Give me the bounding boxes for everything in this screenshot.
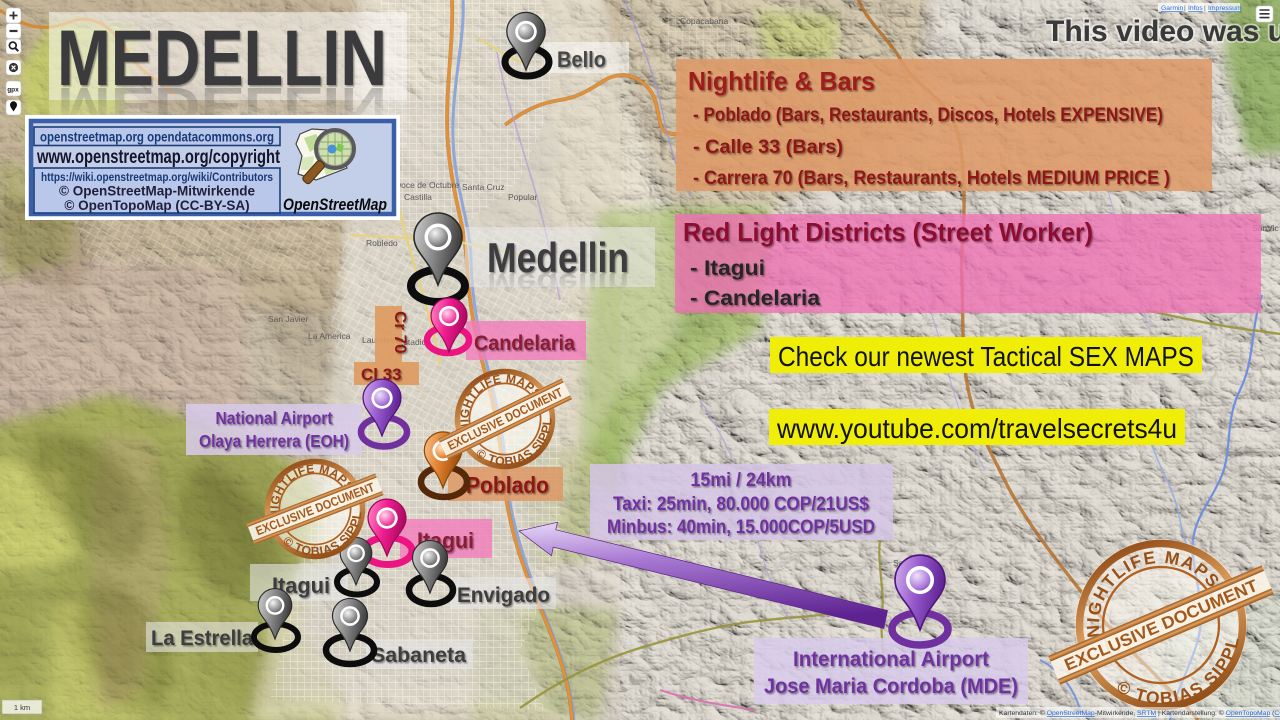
svg-text:Copacabana: Copacabana	[680, 16, 728, 26]
svg-text:Kartendaten: © OpenStreetMap-M: Kartendaten: © OpenStreetMap-Mitwirkende…	[999, 709, 1280, 717]
svg-text:This video was uplo: This video was uplo	[1046, 15, 1280, 48]
svg-text:www.youtube.com/travelsecrets4: www.youtube.com/travelsecrets4u	[776, 413, 1177, 444]
svg-text:- Carrera 70 (Bars, Restaurant: - Carrera 70 (Bars, Restaurants, Hotels …	[693, 168, 1170, 189]
svg-text:Red Light Districts (Street Wo: Red Light Districts (Street Worker)	[683, 217, 1093, 247]
svg-text:OpenStreetMap: OpenStreetMap	[283, 196, 387, 214]
svg-text:openstreetmap.org opendatacom: openstreetmap.org opendatacommons.org	[40, 129, 274, 145]
svg-text:|: |	[1184, 5, 1186, 12]
svg-text:National Airport: National Airport	[216, 408, 333, 428]
svg-text:Bello: Bello	[557, 47, 606, 72]
svg-text:Medellin: Medellin	[487, 268, 629, 299]
svg-text:San Javier: San Javier	[268, 314, 308, 324]
svg-text:Taxi: 25min, 80.000 COP/21US$: Taxi: 25min, 80.000 COP/21US$	[613, 494, 869, 515]
svg-text:- Calle 33 (Bars): - Calle 33 (Bars)	[693, 137, 843, 158]
svg-text:Doce de Octubre: Doce de Octubre	[395, 180, 460, 190]
svg-text:Robledo: Robledo	[366, 238, 398, 248]
svg-text:gpx: gpx	[7, 87, 19, 94]
svg-text:Cr 70: Cr 70	[391, 311, 410, 354]
svg-text:Infos: Infos	[1188, 5, 1203, 12]
svg-text:La America: La America	[308, 331, 351, 341]
svg-text:Envigado: Envigado	[457, 584, 550, 607]
svg-text:Castilla: Castilla	[404, 192, 432, 202]
svg-text:Minbus: 40min, 15.000COP/5USD: Minbus: 40min, 15.000COP/5USD	[607, 517, 875, 538]
svg-text:Olaya Herrera (EOH): Olaya Herrera (EOH)	[199, 431, 349, 451]
svg-text:Poblado: Poblado	[466, 472, 549, 498]
svg-text:- Candelaria: - Candelaria	[690, 287, 820, 310]
svg-text:International Airport: International Airport	[793, 648, 989, 671]
svg-text:Sabaneta: Sabaneta	[371, 644, 466, 667]
svg-text:15mi / 24km: 15mi / 24km	[691, 470, 792, 491]
svg-text:Candelaria: Candelaria	[474, 332, 575, 355]
svg-text:Nightlife & Bars: Nightlife & Bars	[688, 66, 875, 96]
svg-text:|: |	[1204, 5, 1206, 12]
svg-text:- Itagui: - Itagui	[690, 257, 765, 280]
svg-text:Check our newest Tactical SEX: Check our newest Tactical SEX MAPS	[778, 341, 1194, 372]
svg-text:La Estrella: La Estrella	[151, 627, 253, 650]
svg-text:© OpenTopoMap (CC-BY-SA): © OpenTopoMap (CC-BY-SA)	[64, 198, 249, 213]
svg-text:- Poblado (Bars, Restaurants,: - Poblado (Bars, Restaurants, Discos, Ho…	[693, 105, 1163, 126]
svg-text:Garmin: Garmin	[1161, 5, 1184, 12]
svg-text:© OpenStreetMap-Mitwirkende: © OpenStreetMap-Mitwirkende	[59, 184, 255, 199]
svg-text:Impressum: Impressum	[1208, 5, 1242, 12]
svg-text:https://wiki.openstreetmap.org: https://wiki.openstreetmap.org/wiki/Cont…	[41, 172, 273, 184]
svg-text:www.openstreetmap.org/copyrigh: www.openstreetmap.org/copyright	[36, 146, 280, 168]
svg-text:Jose Maria Cordoba (MDE): Jose Maria Cordoba (MDE)	[764, 675, 1018, 698]
svg-text:Santa Cruz: Santa Cruz	[462, 182, 505, 192]
svg-text:1 km: 1 km	[14, 703, 30, 712]
svg-text:Popular: Popular	[508, 192, 537, 202]
